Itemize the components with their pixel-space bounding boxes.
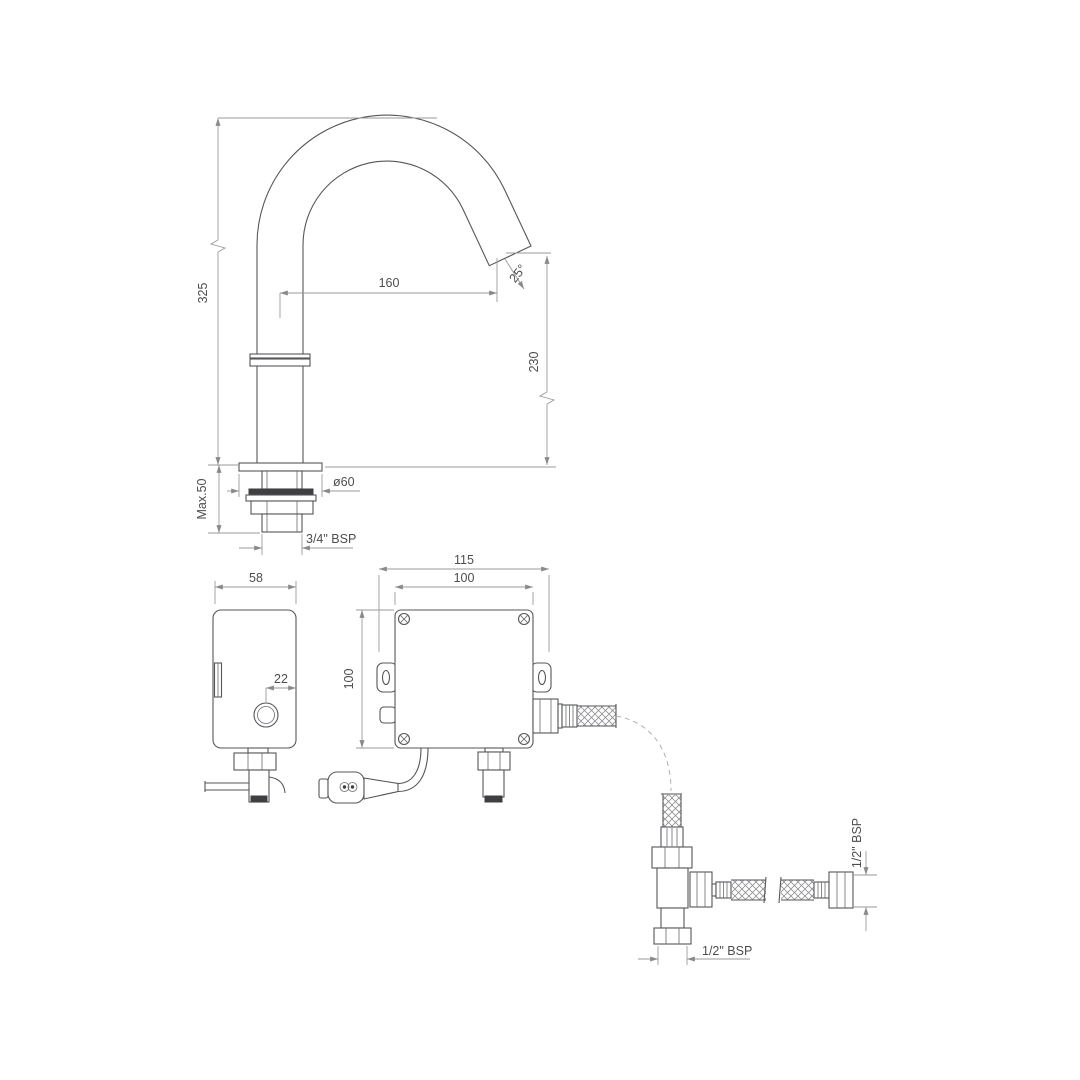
dim-base-diameter: ø60	[333, 475, 355, 489]
tee-bottom-hex-nut	[654, 928, 691, 944]
break-symbol	[540, 392, 554, 404]
dim-spout-height: 325	[196, 283, 210, 304]
spout-collar-upper	[250, 354, 310, 358]
braided-hose-horizontal	[781, 880, 814, 900]
spout-collar-lower	[250, 359, 310, 366]
outlet-pipe-band	[485, 796, 502, 802]
control-box-front-view: 115 100 100	[342, 553, 671, 802]
plug-pin-dot	[343, 786, 345, 788]
base-threaded-tail	[262, 514, 302, 532]
tee-bottom-cylinder	[661, 908, 684, 928]
sensor-cable-line	[398, 748, 428, 792]
tee-branch-nut	[690, 872, 712, 907]
spout-view	[239, 115, 531, 532]
tee-valve-assembly: 1/2" BSP 1/2" BSP	[638, 794, 877, 965]
sensor-cable-stub	[269, 777, 285, 793]
technical-drawing: 325 160 25° 230 Max.50 ø60 3/4" BSP	[0, 0, 1080, 1080]
technical-drawing-page: 325 160 25° 230 Max.50 ø60 3/4" BSP	[0, 0, 1080, 1080]
outlet-threaded-pipe	[483, 770, 504, 797]
side-box-fitting-band	[251, 796, 267, 802]
dim-inlet-thread-bottom: 1/2" BSP	[702, 944, 752, 958]
base-hex-nut	[251, 501, 313, 514]
plug-cap	[319, 779, 328, 798]
dim-inlet-thread-right: 1/2" BSP	[850, 818, 864, 868]
dim-deck-thickness: Max.50	[195, 478, 209, 519]
dim-button-offset: 22	[274, 672, 288, 686]
plug-boot	[364, 778, 398, 799]
dim-box-body-width: 100	[454, 571, 475, 585]
hose-break-line	[779, 877, 781, 903]
tee-top-hex-nut	[652, 847, 692, 868]
side-protrusion	[380, 707, 396, 723]
inlet-hex-nut	[533, 699, 558, 733]
braided-hose-vertical	[663, 794, 681, 827]
base-flange	[239, 463, 322, 471]
break-symbol	[211, 240, 225, 252]
hose-spacer	[558, 704, 562, 728]
tee-body	[657, 868, 688, 908]
mounting-ear-right	[531, 663, 551, 692]
sensor-cable-line	[398, 748, 421, 784]
dim-spout-angle: 25°	[507, 262, 530, 286]
dim-box-depth: 58	[249, 571, 263, 585]
hose-spacer	[712, 884, 716, 896]
dim-box-overall-width: 115	[454, 553, 474, 567]
base-washer	[246, 495, 316, 501]
hose-continuation-dashed	[616, 716, 671, 791]
plug-pin-dot	[351, 786, 353, 788]
dim-base-thread: 3/4" BSP	[306, 532, 356, 546]
braided-hose-horizontal	[731, 880, 766, 900]
front-box-body	[395, 610, 533, 748]
sensor-plug	[319, 772, 398, 803]
side-box-neck	[248, 748, 268, 753]
dim-spout-reach: 160	[379, 276, 400, 290]
base-shank	[262, 471, 302, 489]
hose-end-hex-nut	[829, 872, 853, 908]
base-gasket	[249, 489, 313, 495]
braided-hose	[577, 706, 616, 726]
side-box-hex-nut	[234, 753, 276, 770]
mounting-ear-left	[377, 663, 397, 692]
control-box-side-view: 58 22	[205, 571, 296, 802]
outlet-stem	[485, 748, 503, 752]
dim-outlet-height: 230	[527, 352, 541, 373]
outlet-hex-nut	[478, 752, 510, 770]
dim-box-height: 100	[342, 669, 356, 690]
